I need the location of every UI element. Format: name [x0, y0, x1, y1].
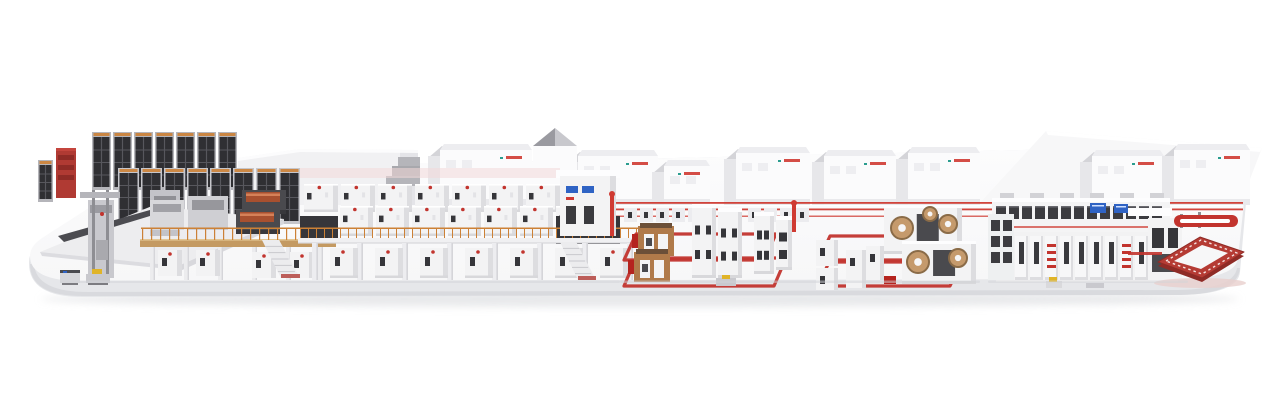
gallery-window	[1022, 206, 1032, 219]
logo-stripe	[684, 172, 700, 175]
logo-mark	[948, 160, 951, 162]
logo-stripe	[870, 162, 886, 165]
control-display	[1114, 204, 1128, 213]
gallery-window	[1074, 206, 1084, 219]
cabinet	[1090, 236, 1103, 280]
ground-cabinet	[420, 248, 448, 278]
ground-cabinet	[600, 248, 628, 278]
die-cutter	[902, 241, 976, 284]
building-gable	[1162, 144, 1250, 205]
red-buffer-tower	[56, 148, 76, 198]
ground-cabinet	[510, 248, 538, 278]
storage-rack	[38, 160, 53, 202]
cabinet	[1105, 236, 1118, 280]
status-display	[582, 186, 594, 193]
logo-stripe	[1138, 162, 1154, 165]
red-pipe	[610, 196, 614, 236]
logo-stripe	[954, 159, 970, 162]
sorting-logistics-line	[988, 193, 1182, 282]
ground-shadow	[60, 281, 1188, 284]
building-gable	[724, 147, 810, 205]
ground-cabinet	[465, 248, 493, 278]
machine-tower	[718, 208, 742, 278]
machine-tower	[754, 212, 774, 274]
gallery-window	[1048, 206, 1058, 219]
factory-line-render	[0, 0, 1280, 405]
pallet-cart	[1086, 283, 1104, 288]
cabinet	[1045, 236, 1058, 280]
support-column	[312, 243, 318, 280]
machine-tower	[988, 214, 1014, 280]
corrugator-roll-unit	[236, 210, 280, 234]
cabinet	[1135, 236, 1148, 280]
building-gable	[652, 160, 710, 205]
gallery-window	[1035, 206, 1045, 219]
logo-mark	[1218, 157, 1221, 159]
print-unit	[628, 249, 670, 282]
logo-mark	[626, 163, 629, 165]
storage-rack	[92, 132, 111, 190]
building-gable	[812, 150, 896, 205]
cabinet	[1120, 236, 1133, 280]
gallery-window	[1061, 206, 1071, 219]
cabinet	[1060, 236, 1073, 280]
logo-stripe	[1224, 156, 1240, 159]
machine-tower	[692, 204, 716, 278]
ground-cabinet	[375, 248, 403, 278]
scene-canvas	[0, 0, 1280, 405]
logo-mark	[778, 160, 781, 162]
logo-stripe	[632, 162, 648, 165]
logo-mark	[500, 157, 503, 159]
logo-stripe	[784, 159, 800, 162]
logo-mark	[678, 173, 681, 175]
corrugator-module	[304, 184, 338, 212]
logo-stripe	[506, 156, 522, 159]
cabinet	[1015, 236, 1028, 280]
logo-mark	[864, 163, 867, 165]
cabinet	[1075, 236, 1088, 280]
cabinet	[1030, 236, 1043, 280]
machine-tower	[776, 216, 792, 270]
control-display	[1090, 203, 1106, 213]
status-display	[566, 186, 578, 193]
logo-mark	[1132, 163, 1135, 165]
ground-cabinet	[330, 248, 358, 278]
building-gable	[896, 147, 980, 205]
